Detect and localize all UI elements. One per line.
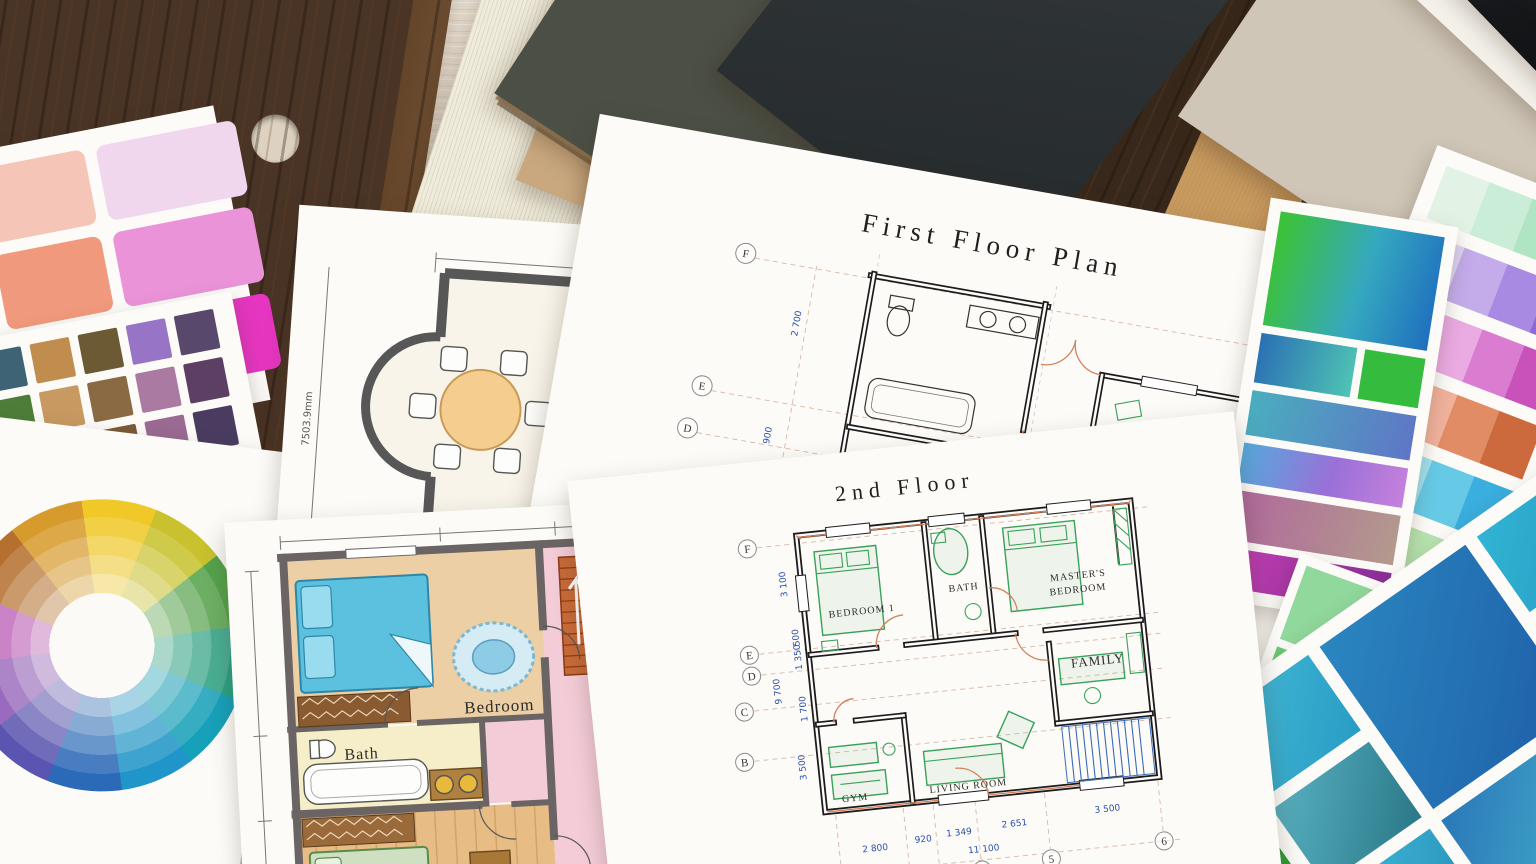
dim-label: 3 500 [797,754,810,781]
dim-label: 1 349 [946,827,973,840]
workspace-photo: 12554.5mm 7503.9mm [0,0,1536,864]
grid-row-label: C [740,707,749,720]
grid-row-label: D [747,671,756,684]
swatch-block [1358,349,1426,408]
dim-label: 2 651 [1001,818,1028,831]
dim-label: 9 700 [772,678,785,705]
swatch-cell [29,337,76,384]
bench [470,850,513,864]
dim-label: 900 [762,426,775,445]
sample-hang-hole [248,111,303,166]
swatch-cell [0,149,98,244]
swatch-cell [112,206,266,308]
bath-label-2: BATH [948,581,979,595]
dims-bottom-2: 2 800 920 1 349 2 651 3 500 11 100 [860,803,1123,864]
swatch-cell [87,376,134,423]
swatch-cell [126,318,173,365]
swatch-cell [135,366,182,413]
dim-label: 1 700 [798,695,811,722]
stairs-2 [1062,718,1155,783]
dim-label: 3 100 [778,571,791,598]
swatch-cell [95,120,249,222]
dim-label: 2 800 [862,843,889,856]
dim-label: 920 [914,834,932,846]
shag-rug-2 [302,813,415,847]
dim-label: 500 [791,628,803,646]
bathroom-fixtures [863,290,1039,443]
bath-label: Bath [344,745,379,764]
swatch-block [1263,211,1445,351]
grid-row-label: B [740,757,749,770]
upper-plan-height-dim: 7503.9mm [301,391,316,446]
swatch-block [1254,333,1358,398]
hallway-floor [482,718,552,803]
second-floor-plan-drawing: 2nd Floor F E D C B A [567,411,1282,864]
shag-rug [297,691,410,727]
bed-blue [295,574,433,693]
grid-row-label: F [744,544,751,557]
grid-row-label: E [746,650,754,663]
bedroom-top-label: Bedroom [464,695,535,718]
dim-total-label: 11 100 [968,843,1001,856]
gym-label: GYM [841,792,868,806]
second-floor-plan-sheet: 2nd Floor F E D C B A [567,411,1282,864]
swatch-cell [174,309,221,356]
swatch-cell [77,327,124,374]
first-floor-plan-title: First Floor Plan [860,207,1127,283]
dim-label: 1 350 [793,644,806,671]
swatch-cell [183,357,230,404]
dim-label: 3 500 [1094,803,1121,816]
swatch-cell [0,346,28,393]
dim-label: 2 700 [790,310,804,337]
second-floor-plan-title: 2nd Floor [834,467,976,507]
